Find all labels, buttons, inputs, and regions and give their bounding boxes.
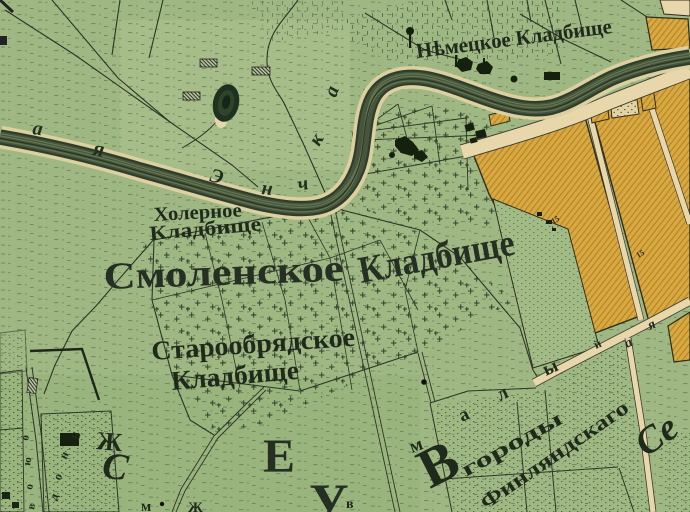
svg-text:Смоленское: Смоленское: [103, 248, 344, 298]
svg-text:м: м: [141, 499, 151, 512]
svg-text:н: н: [260, 177, 273, 200]
svg-text:Ж: Ж: [188, 500, 203, 512]
svg-text:У: У: [309, 473, 349, 512]
svg-text:Е: Е: [263, 430, 295, 483]
svg-text:в: в: [346, 497, 354, 512]
